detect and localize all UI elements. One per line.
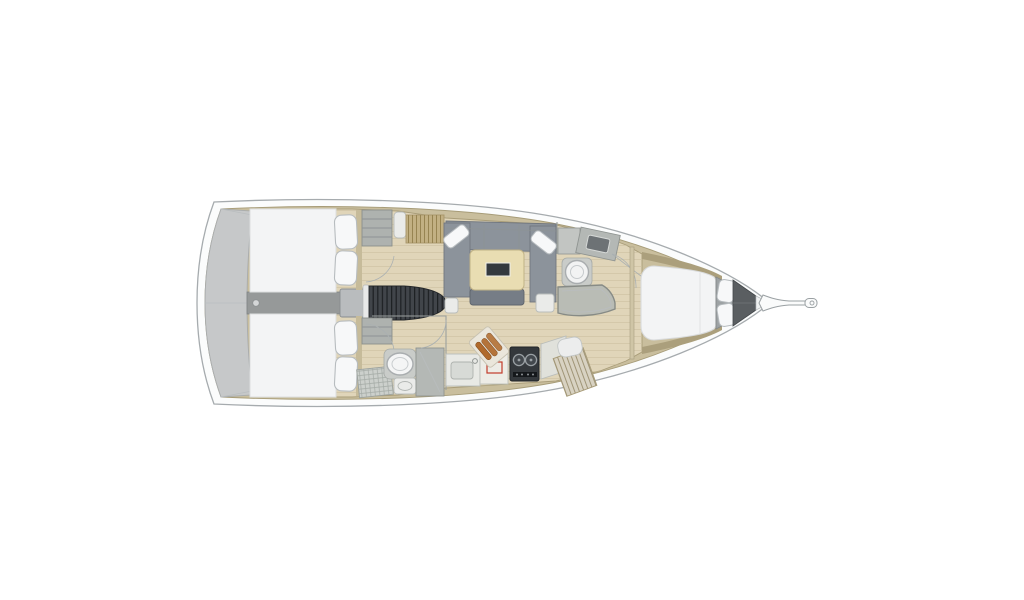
forward-cabin	[641, 252, 737, 354]
boat-floorplan-canvas	[0, 0, 1024, 600]
aft-head-sink	[394, 378, 416, 394]
starboard-aft-berth	[250, 314, 336, 397]
starboard-locker	[362, 318, 392, 344]
stair-threshold	[363, 285, 369, 321]
aft-toilet	[387, 353, 413, 375]
bowsprit-head	[805, 299, 817, 308]
galley-stove	[510, 347, 539, 381]
starboard-pillow-2	[334, 356, 358, 391]
port-wardrobe	[362, 210, 392, 246]
port-pillow-2	[334, 250, 358, 285]
salon-side-box	[536, 294, 554, 312]
floorplan-svg	[0, 0, 1024, 600]
galley-sink-basin	[451, 362, 473, 379]
salon-small-box	[445, 298, 458, 313]
port-seat	[394, 212, 406, 238]
swim-platform	[205, 209, 252, 397]
teak-locker	[406, 215, 444, 243]
starboard-pillow-1	[334, 320, 358, 355]
port-aft-berth	[250, 209, 336, 292]
bowsprit	[759, 295, 806, 311]
forward-bulkhead	[630, 247, 634, 359]
vberth-mattress	[641, 266, 716, 340]
port-pillow-1	[334, 214, 358, 249]
table-inset	[486, 263, 510, 276]
head-toilet	[566, 261, 589, 284]
sofa-foot-bench	[470, 289, 524, 305]
deck-filler-cap	[253, 300, 260, 307]
